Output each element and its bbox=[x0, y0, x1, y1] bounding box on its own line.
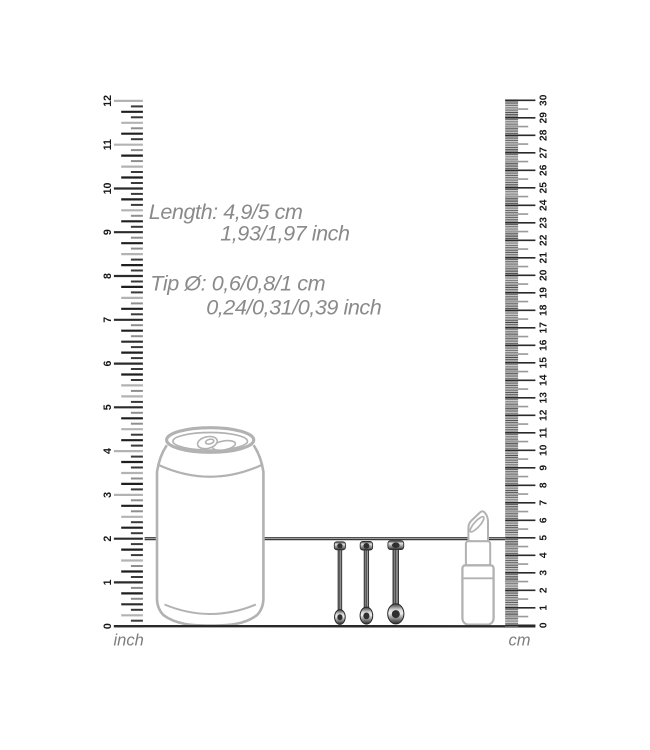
svg-text:14: 14 bbox=[539, 374, 550, 386]
svg-text:6: 6 bbox=[102, 361, 114, 367]
svg-text:0: 0 bbox=[539, 622, 550, 628]
svg-text:inch: inch bbox=[114, 632, 144, 650]
svg-text:5: 5 bbox=[102, 404, 114, 410]
svg-text:9: 9 bbox=[539, 465, 550, 471]
svg-text:1: 1 bbox=[102, 579, 114, 585]
svg-text:9: 9 bbox=[102, 229, 114, 235]
svg-text:0,24/0,31/0,39 inch: 0,24/0,31/0,39 inch bbox=[206, 294, 382, 319]
svg-text:10: 10 bbox=[102, 183, 114, 195]
svg-text:4: 4 bbox=[539, 552, 550, 558]
svg-text:5: 5 bbox=[539, 535, 550, 541]
svg-text:26: 26 bbox=[539, 164, 550, 176]
svg-text:3: 3 bbox=[539, 570, 550, 576]
svg-text:6: 6 bbox=[539, 517, 550, 523]
svg-text:19: 19 bbox=[539, 287, 550, 299]
svg-text:22: 22 bbox=[539, 234, 550, 246]
svg-text:7: 7 bbox=[102, 317, 114, 323]
svg-text:11: 11 bbox=[102, 139, 114, 150]
svg-text:20: 20 bbox=[539, 269, 550, 281]
svg-text:8: 8 bbox=[102, 273, 114, 279]
svg-text:1: 1 bbox=[539, 605, 550, 611]
svg-text:2: 2 bbox=[539, 587, 550, 593]
svg-text:25: 25 bbox=[539, 182, 550, 194]
svg-text:30: 30 bbox=[539, 94, 550, 106]
svg-text:3: 3 bbox=[102, 492, 114, 498]
svg-text:11: 11 bbox=[539, 427, 550, 438]
svg-text:13: 13 bbox=[539, 392, 550, 404]
svg-text:7: 7 bbox=[539, 500, 550, 506]
svg-text:8: 8 bbox=[539, 482, 550, 488]
svg-text:1,93/1,97 inch: 1,93/1,97 inch bbox=[220, 220, 350, 245]
svg-text:29: 29 bbox=[539, 112, 550, 124]
svg-text:0: 0 bbox=[102, 623, 114, 629]
svg-text:2: 2 bbox=[102, 536, 114, 542]
svg-text:12: 12 bbox=[102, 95, 114, 107]
svg-text:18: 18 bbox=[539, 304, 550, 316]
svg-text:4: 4 bbox=[102, 448, 114, 454]
svg-text:16: 16 bbox=[539, 339, 550, 351]
svg-text:23: 23 bbox=[539, 217, 550, 229]
svg-text:cm: cm bbox=[509, 631, 531, 649]
svg-text:12: 12 bbox=[539, 409, 550, 421]
svg-text:28: 28 bbox=[539, 129, 550, 141]
svg-text:17: 17 bbox=[539, 322, 550, 334]
svg-text:Tip Ø: 0,6/0,8/1 cm: Tip Ø: 0,6/0,8/1 cm bbox=[150, 271, 325, 296]
svg-text:15: 15 bbox=[539, 357, 550, 369]
svg-text:24: 24 bbox=[539, 199, 550, 211]
svg-text:10: 10 bbox=[539, 444, 550, 456]
svg-text:21: 21 bbox=[539, 252, 550, 264]
svg-text:27: 27 bbox=[539, 147, 550, 159]
